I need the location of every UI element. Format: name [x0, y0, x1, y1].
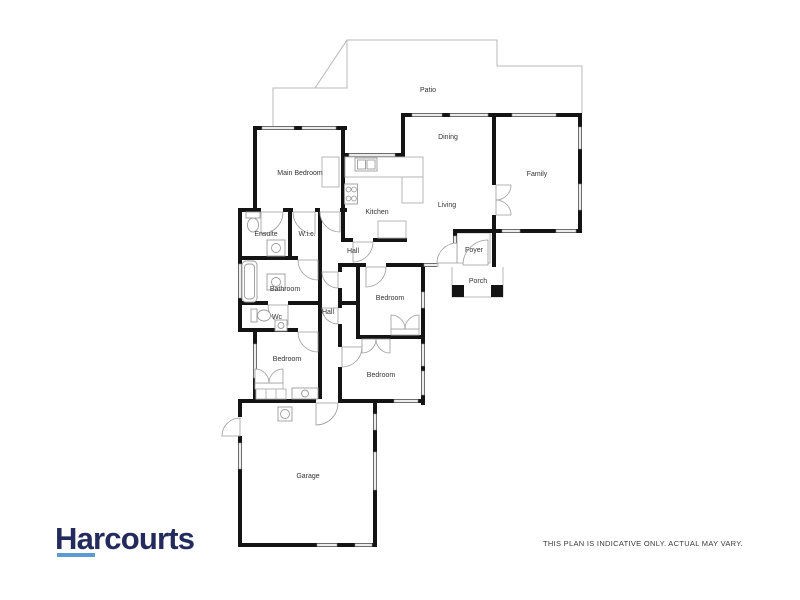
porch-pillars: [452, 285, 503, 297]
vanity-sink-icon: [267, 240, 285, 256]
porch-pillar: [491, 285, 503, 297]
garage-fixtures: [278, 407, 292, 421]
porch-pillar: [452, 285, 464, 297]
room-label-wc: Wc: [272, 314, 283, 321]
room-label-patio: Patio: [420, 87, 436, 94]
water-heater-icon: [278, 407, 292, 421]
harcourts-logo-underline: [57, 553, 95, 557]
room-label-ensuite: Ensuite: [254, 231, 277, 238]
laundry-fixtures: [256, 388, 318, 399]
kitchen-peninsula: [402, 177, 423, 203]
room-label-main-bedroom: Main Bedroom: [277, 170, 323, 177]
room-label-porch: Porch: [469, 278, 487, 285]
bathroom-fixtures: [242, 261, 285, 302]
floorplan-canvas: Patio Dining Family Main Bedroom Kitchen…: [0, 0, 800, 600]
small-basin-icon: [275, 320, 287, 331]
room-label-family: Family: [527, 171, 548, 178]
room-label-bathroom: Bathroom: [270, 286, 301, 293]
room-label-bedroom-left: Bedroom: [273, 356, 302, 363]
floorplan-page: { "branding": { "logo_text": "Harcourts"…: [0, 0, 800, 600]
room-label-dining: Dining: [438, 134, 458, 141]
kitchen-island: [378, 221, 406, 238]
room-label-bedroom-mid: Bedroom: [376, 295, 405, 302]
room-label-hall-upper: Hall: [347, 248, 360, 255]
stove-icon: [345, 184, 358, 204]
room-label-bedroom-bottom: Bedroom: [367, 372, 396, 379]
room-label-living: Living: [438, 202, 456, 209]
built-in-robe: [322, 157, 339, 187]
room-label-foyer: Foyer: [465, 247, 484, 254]
bathtub-icon: [242, 261, 257, 302]
room-label-hall-lower: Hall: [322, 309, 335, 316]
toilet-icon: [246, 212, 260, 232]
disclaimer-text: THIS PLAN IS INDICATIVE ONLY. ACTUAL MAY…: [543, 539, 743, 548]
laundry-trough-icon: [292, 388, 318, 399]
room-label-garage: Garage: [296, 473, 319, 480]
harcourts-logo: Harcourts: [55, 521, 194, 557]
room-label-kitchen: Kitchen: [365, 209, 388, 216]
toilet-icon: [251, 309, 271, 322]
room-label-wic: W.i.c.: [298, 231, 315, 238]
kitchen-fixtures: [345, 157, 424, 238]
